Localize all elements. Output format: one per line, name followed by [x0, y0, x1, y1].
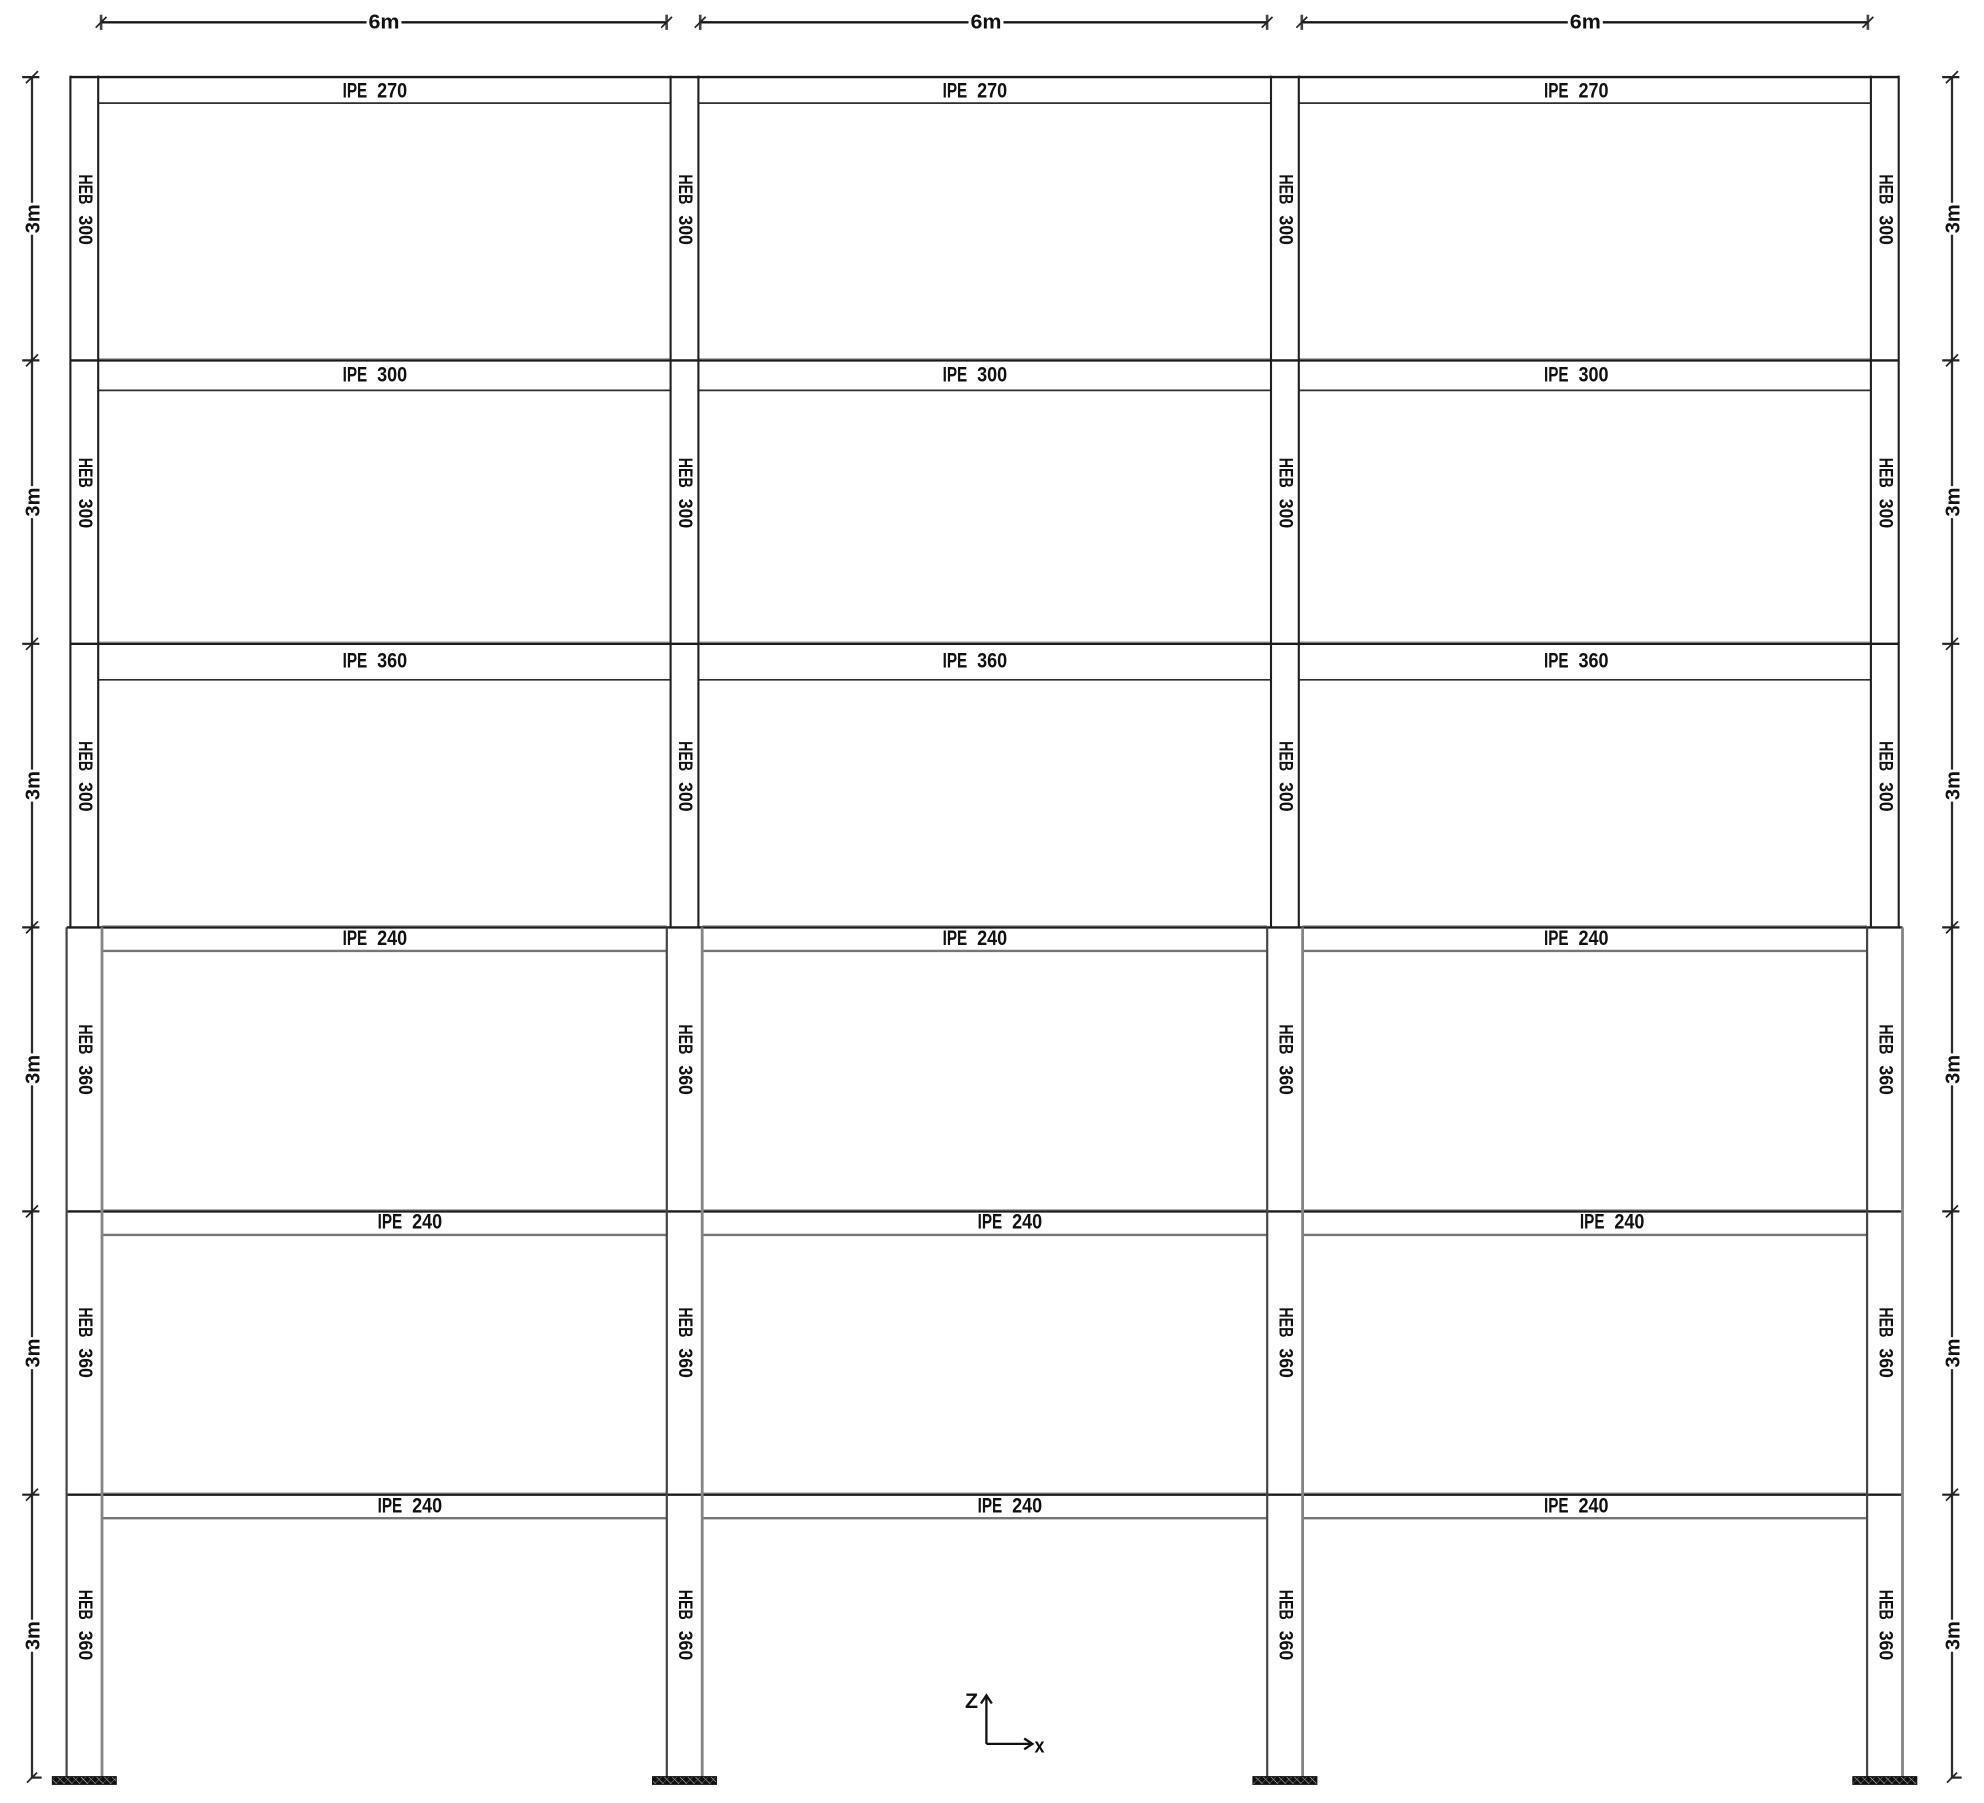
svg-text:IPE: IPE [1544, 926, 1569, 950]
svg-text:360: 360 [74, 1065, 96, 1095]
svg-text:360: 360 [377, 648, 407, 672]
svg-text:HEB: HEB [1874, 1307, 1896, 1337]
svg-text:HEB: HEB [674, 741, 696, 771]
svg-text:360: 360 [1274, 1065, 1296, 1095]
svg-text:240: 240 [1012, 1210, 1042, 1234]
svg-text:HEB: HEB [674, 174, 696, 204]
svg-text:3m: 3m [1943, 771, 1965, 800]
svg-text:HEB: HEB [674, 1307, 696, 1337]
svg-text:240: 240 [1012, 1493, 1042, 1517]
svg-text:6m: 6m [971, 11, 1002, 33]
svg-text:300: 300 [1274, 499, 1296, 529]
svg-text:IPE: IPE [1544, 1493, 1569, 1517]
svg-text:360: 360 [1874, 1065, 1896, 1095]
svg-text:HEB: HEB [1874, 1024, 1896, 1054]
svg-text:240: 240 [977, 926, 1007, 950]
svg-text:270: 270 [977, 78, 1007, 102]
svg-text:IPE: IPE [343, 926, 368, 950]
svg-text:6m: 6m [369, 11, 400, 33]
svg-text:HEB: HEB [674, 1024, 696, 1054]
svg-text:3m: 3m [23, 1621, 45, 1650]
svg-text:240: 240 [1579, 1493, 1609, 1517]
svg-text:3m: 3m [23, 488, 45, 517]
svg-text:300: 300 [977, 362, 1007, 386]
svg-text:IPE: IPE [378, 1493, 403, 1517]
svg-text:3m: 3m [1943, 1055, 1965, 1084]
svg-text:300: 300 [1874, 499, 1896, 529]
svg-text:HEB: HEB [674, 458, 696, 488]
svg-text:300: 300 [74, 499, 96, 529]
svg-text:IPE: IPE [943, 926, 968, 950]
svg-text:HEB: HEB [674, 1590, 696, 1620]
svg-text:x: x [1035, 1736, 1045, 1758]
svg-text:300: 300 [1274, 215, 1296, 245]
svg-text:HEB: HEB [1874, 1590, 1896, 1620]
svg-text:HEB: HEB [1274, 741, 1296, 771]
svg-text:IPE: IPE [1544, 78, 1569, 102]
svg-text:6m: 6m [1570, 11, 1601, 33]
svg-text:3m: 3m [23, 1339, 45, 1368]
svg-text:360: 360 [1874, 1631, 1896, 1661]
svg-text:300: 300 [74, 215, 96, 245]
svg-text:HEB: HEB [74, 458, 96, 488]
svg-text:300: 300 [674, 782, 696, 812]
svg-text:HEB: HEB [74, 1307, 96, 1337]
svg-text:300: 300 [674, 499, 696, 529]
svg-text:270: 270 [377, 78, 407, 102]
svg-text:3m: 3m [1943, 1339, 1965, 1368]
svg-text:360: 360 [74, 1631, 96, 1661]
svg-text:HEB: HEB [1274, 1307, 1296, 1337]
svg-text:300: 300 [1874, 782, 1896, 812]
svg-text:3m: 3m [23, 204, 45, 233]
svg-text:HEB: HEB [1274, 458, 1296, 488]
svg-text:300: 300 [1579, 362, 1609, 386]
svg-text:HEB: HEB [1874, 174, 1896, 204]
svg-text:360: 360 [1274, 1348, 1296, 1378]
svg-text:IPE: IPE [343, 362, 368, 386]
svg-text:300: 300 [377, 362, 407, 386]
svg-text:IPE: IPE [943, 78, 968, 102]
svg-text:IPE: IPE [978, 1493, 1003, 1517]
svg-text:360: 360 [674, 1348, 696, 1378]
svg-text:3m: 3m [1943, 1621, 1965, 1650]
svg-text:3m: 3m [23, 771, 45, 800]
svg-text:360: 360 [74, 1348, 96, 1378]
svg-text:360: 360 [1874, 1348, 1896, 1378]
svg-text:3m: 3m [23, 1055, 45, 1084]
svg-text:IPE: IPE [1580, 1210, 1605, 1234]
svg-text:360: 360 [674, 1065, 696, 1095]
svg-text:HEB: HEB [74, 1024, 96, 1054]
svg-text:3m: 3m [1943, 488, 1965, 517]
svg-text:300: 300 [1874, 215, 1896, 245]
svg-text:IPE: IPE [343, 78, 368, 102]
svg-text:240: 240 [377, 926, 407, 950]
svg-text:IPE: IPE [943, 362, 968, 386]
svg-text:270: 270 [1579, 78, 1609, 102]
svg-text:360: 360 [1274, 1631, 1296, 1661]
svg-text:IPE: IPE [1544, 648, 1569, 672]
svg-text:240: 240 [1614, 1210, 1644, 1234]
svg-text:300: 300 [74, 782, 96, 812]
svg-text:IPE: IPE [943, 648, 968, 672]
svg-text:360: 360 [977, 648, 1007, 672]
svg-text:IPE: IPE [378, 1210, 403, 1234]
svg-text:HEB: HEB [74, 741, 96, 771]
svg-text:HEB: HEB [74, 1590, 96, 1620]
svg-text:HEB: HEB [1274, 1024, 1296, 1054]
svg-text:HEB: HEB [1274, 1590, 1296, 1620]
svg-text:HEB: HEB [1274, 174, 1296, 204]
svg-text:HEB: HEB [1874, 458, 1896, 488]
svg-text:HEB: HEB [1874, 741, 1896, 771]
svg-text:360: 360 [1579, 648, 1609, 672]
svg-text:300: 300 [1274, 782, 1296, 812]
svg-text:IPE: IPE [1544, 362, 1569, 386]
svg-text:HEB: HEB [74, 174, 96, 204]
svg-text:IPE: IPE [343, 648, 368, 672]
svg-text:IPE: IPE [978, 1210, 1003, 1234]
svg-text:Z: Z [965, 1690, 978, 1713]
svg-text:360: 360 [674, 1631, 696, 1661]
svg-text:240: 240 [412, 1493, 442, 1517]
svg-text:240: 240 [1579, 926, 1609, 950]
svg-text:3m: 3m [1943, 204, 1965, 233]
svg-text:240: 240 [412, 1210, 442, 1234]
svg-text:300: 300 [674, 215, 696, 245]
